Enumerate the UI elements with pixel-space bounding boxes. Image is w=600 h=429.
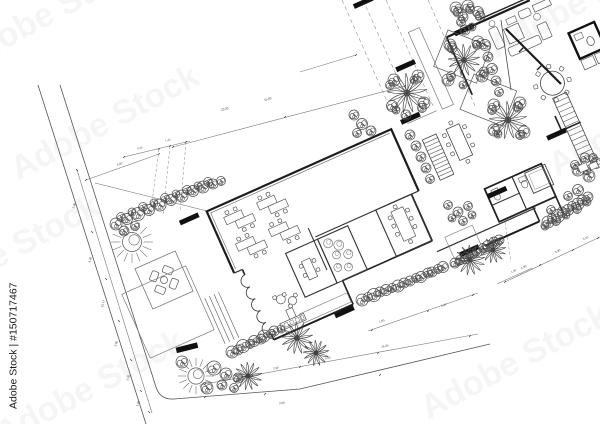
- svg-text:Adobe Stock | #150717467: Adobe Stock | #150717467: [8, 282, 20, 409]
- svg-text:3.55: 3.55: [279, 401, 285, 406]
